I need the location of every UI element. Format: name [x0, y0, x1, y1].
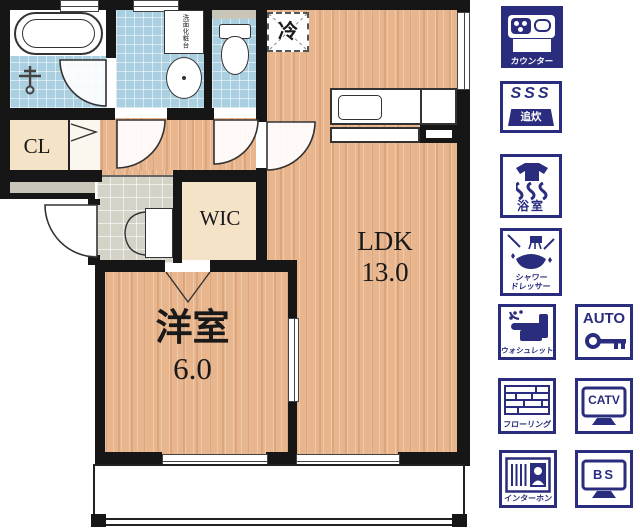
- balcony-corner-left: [91, 514, 106, 527]
- legend-autolock-label: AUTO: [578, 310, 630, 327]
- legend-bs: BS: [575, 450, 633, 508]
- legend-bs-label: BS: [578, 467, 630, 482]
- toilet-door: [214, 120, 258, 164]
- legend-bath-dryer-label: 浴室: [503, 197, 559, 214]
- flooring-icon: [504, 385, 550, 415]
- shoe-cabinet-doors: [125, 212, 145, 255]
- shower-dresser-icon: [506, 233, 556, 273]
- legend-interphone: インターホン: [499, 450, 557, 508]
- legend-interphone-label: インターホン: [501, 493, 554, 504]
- shirt-icon: [512, 161, 552, 183]
- legend-autolock: AUTO: [575, 304, 633, 360]
- legend-oidaki: SSS 追炊: [500, 81, 562, 133]
- legend-counter-label: カウンター: [500, 55, 563, 67]
- washroom-door: [117, 120, 165, 168]
- key-icon: [584, 331, 628, 353]
- ldk-label: LDK 13.0: [325, 226, 445, 288]
- counter-kitchen-icon: [508, 15, 555, 38]
- legend-counter: カウンター: [501, 6, 563, 68]
- legend-shower-dresser: シャワー ドレッサー: [500, 228, 562, 296]
- bedroom-label: 洋室 6.0: [125, 308, 260, 386]
- legend-washlet-label: ウォシュレット: [500, 345, 553, 356]
- closet-label: CL: [12, 134, 62, 158]
- legend-flooring: フローリング: [498, 378, 556, 434]
- wic-door-mark: [166, 272, 210, 302]
- balcony-corner-right: [452, 514, 467, 527]
- balcony: [93, 464, 465, 526]
- ldk-door: [267, 122, 315, 170]
- washlet-icon: [505, 310, 551, 344]
- entrance-door: [45, 205, 97, 257]
- legend-shower-dresser-label: シャワー ドレッサー: [502, 273, 560, 291]
- wic-label: WIC: [188, 206, 252, 230]
- legend-catv: CATV: [575, 378, 633, 434]
- legend-washlet: ウォシュレット: [498, 304, 556, 360]
- bathtub-icon: 追炊: [508, 109, 554, 126]
- legend-catv-label: CATV: [578, 393, 630, 407]
- legend-flooring-label: フローリング: [500, 419, 553, 430]
- legend-bath-dryer: 浴室: [500, 154, 562, 218]
- closet-fold-mark: [71, 124, 96, 141]
- bathroom-door: [60, 60, 106, 106]
- steam-icon: SSS: [503, 85, 559, 103]
- balcony-inner-line: [99, 518, 459, 520]
- floorplan-page: 洗面化粧台 冷 LDK: [0, 0, 640, 531]
- interphone-icon: [505, 457, 551, 493]
